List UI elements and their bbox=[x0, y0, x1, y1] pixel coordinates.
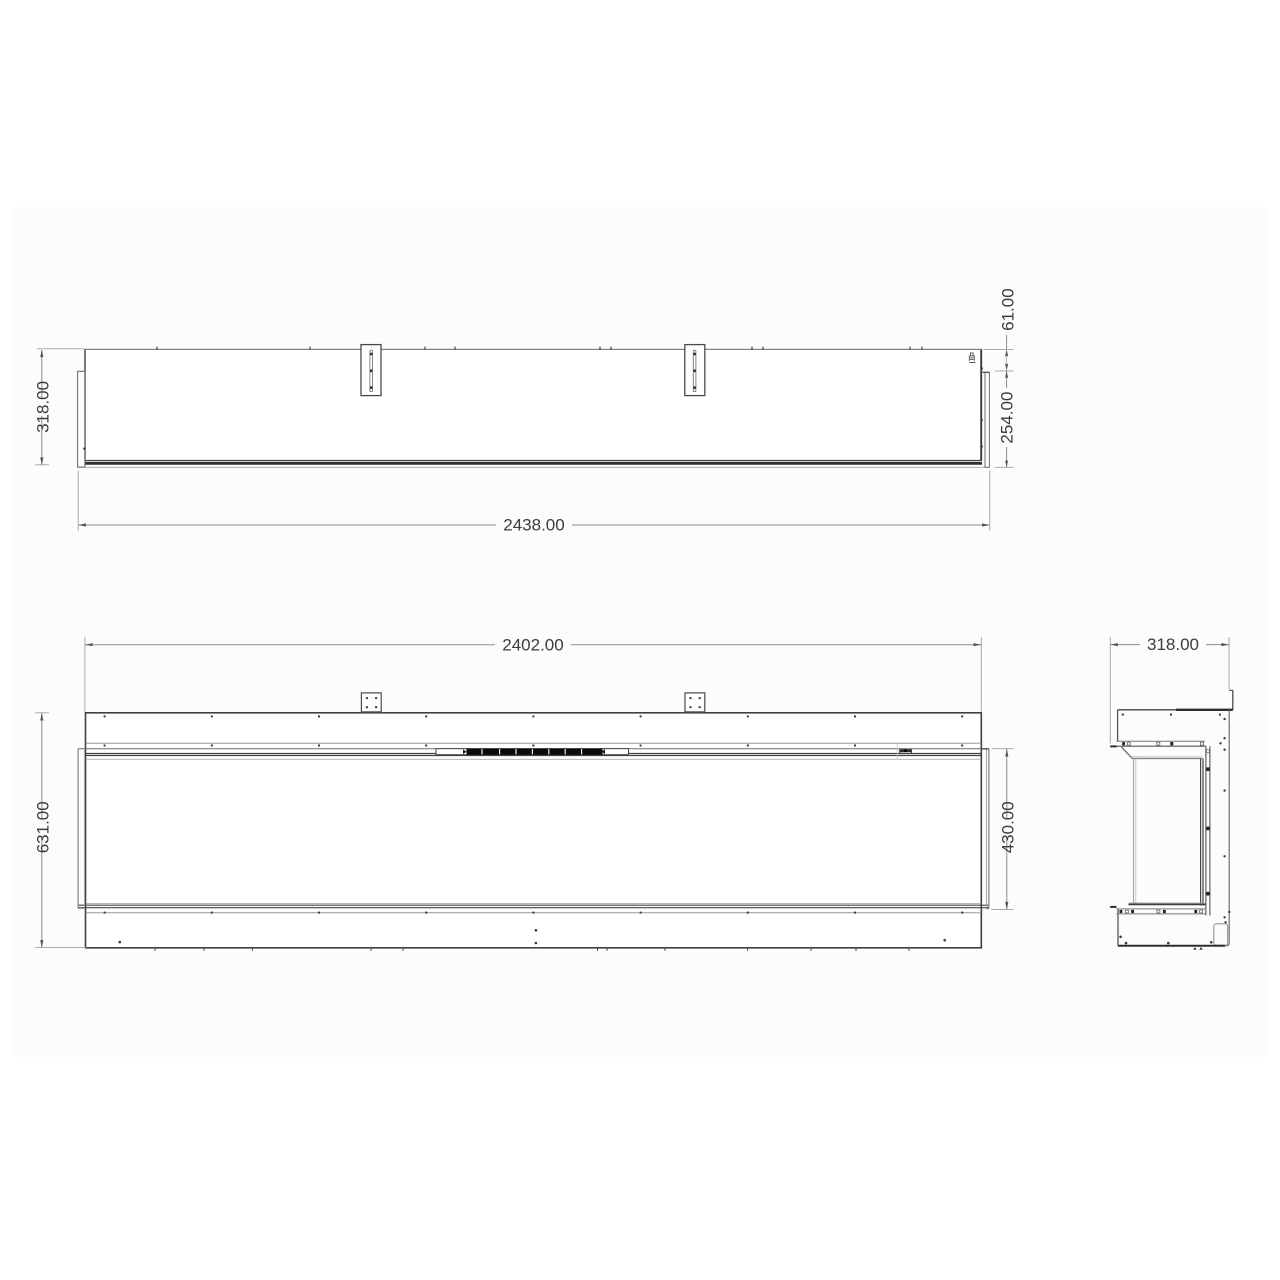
svg-text:318.00: 318.00 bbox=[1147, 635, 1199, 654]
svg-text:2438.00: 2438.00 bbox=[503, 516, 564, 535]
svg-text:2402.00: 2402.00 bbox=[502, 635, 563, 654]
svg-text:631.00: 631.00 bbox=[34, 801, 53, 853]
svg-text:430.00: 430.00 bbox=[999, 801, 1018, 853]
svg-text:254.00: 254.00 bbox=[998, 392, 1017, 444]
svg-text:61.00: 61.00 bbox=[998, 288, 1017, 331]
svg-text:318.00: 318.00 bbox=[34, 381, 53, 433]
